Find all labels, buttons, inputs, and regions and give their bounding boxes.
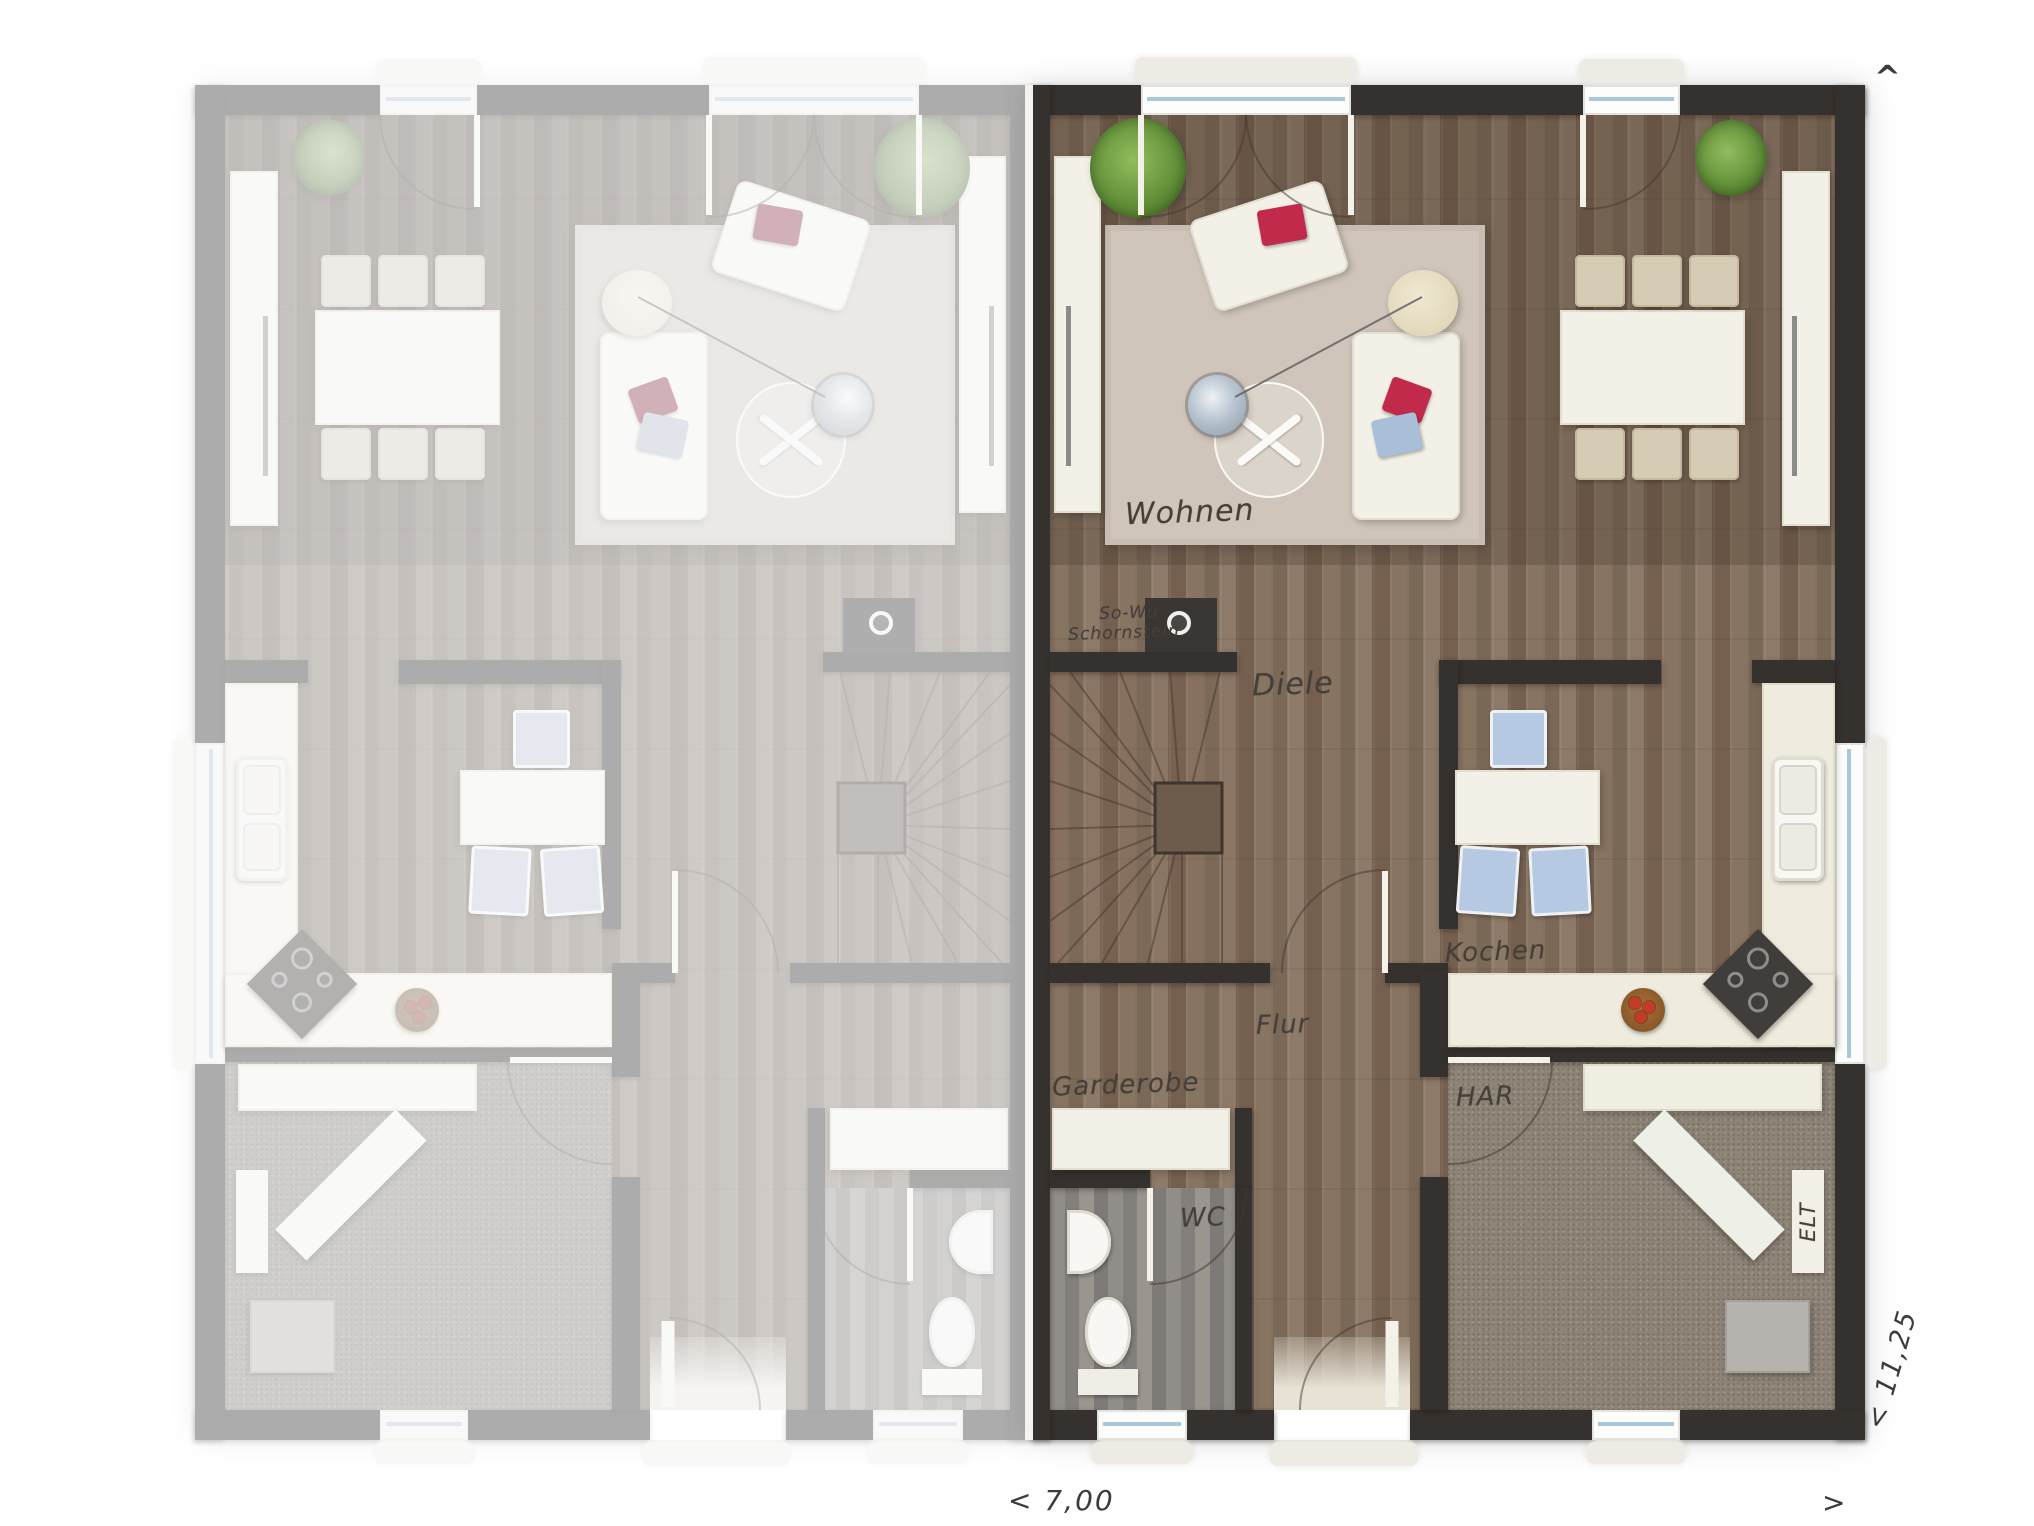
room-label-flur: Flur xyxy=(1255,1009,1309,1041)
wc-window-sill xyxy=(1091,1442,1193,1464)
room-label-har: HAR xyxy=(1455,1081,1514,1113)
room-label-wohnen: Wohnen xyxy=(1124,493,1255,532)
width-dimension-label: < 7,00 xyxy=(1008,1484,1115,1517)
depth-dimension-label: < 11,25 xyxy=(1860,1306,1924,1432)
width-dimension-arrow: > xyxy=(1822,1486,1845,1519)
terrace-step xyxy=(376,59,481,83)
unit-left-faded xyxy=(195,85,1030,1440)
party-wall-seam xyxy=(1025,85,1033,1440)
room-label-diele: Diele xyxy=(1251,666,1334,704)
entrance-step xyxy=(1270,1442,1418,1466)
room-label-garderobe: Garderobe xyxy=(1052,1067,1200,1102)
room-label-wc: WC xyxy=(1179,1202,1226,1234)
har-window-sill xyxy=(374,1442,474,1464)
terrace-step xyxy=(1579,59,1684,83)
curtain-strip xyxy=(1135,57,1357,83)
wc-window-sill xyxy=(867,1442,969,1464)
curtain-strip xyxy=(703,57,925,83)
depth-dimension-arrow: ^ xyxy=(1874,58,1901,96)
kitchen-window-sill xyxy=(1867,737,1887,1070)
har-window-sill xyxy=(1586,1442,1686,1464)
stairs-and-doors xyxy=(1030,85,1865,1440)
room-label-kochen: Kochen xyxy=(1445,935,1547,969)
kitchen-window-sill xyxy=(173,737,193,1070)
unit-right: ELT xyxy=(1030,85,1865,1440)
unit-plan xyxy=(195,85,1030,1440)
unit-plan: ELT xyxy=(1030,85,1865,1440)
floor-plan: ELT xyxy=(0,0,2034,1526)
stairs-and-doors xyxy=(195,85,1030,1440)
entrance-step xyxy=(642,1442,790,1466)
